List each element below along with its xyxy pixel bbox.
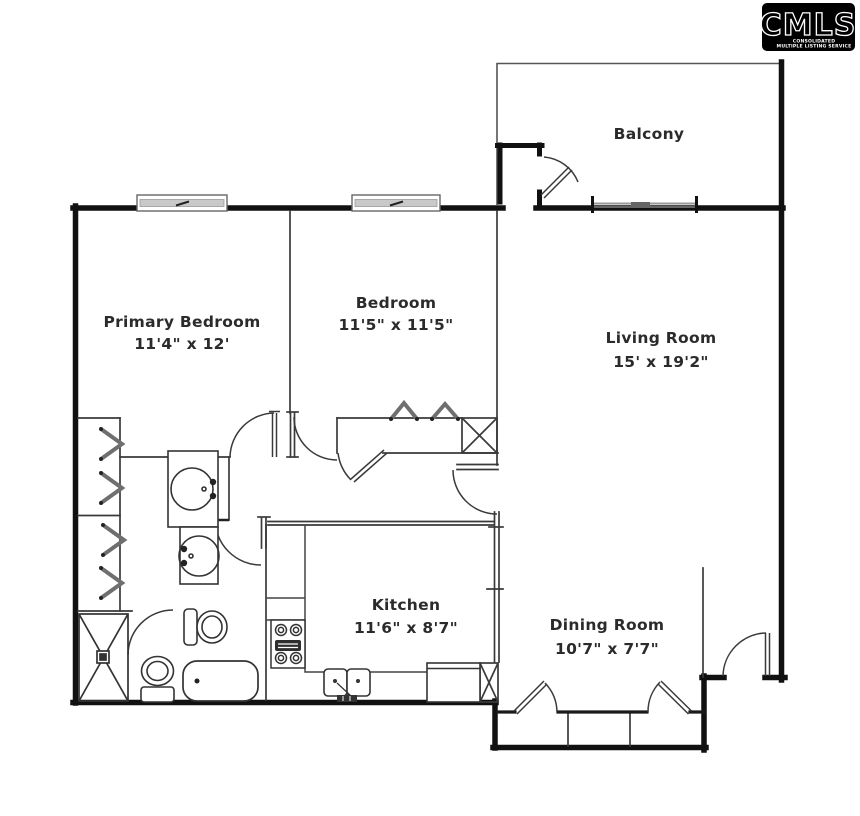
room-dims-bedroom: 11'5" x 11'5" bbox=[338, 316, 453, 334]
room-label-primary-bedroom: Primary Bedroom bbox=[103, 313, 260, 331]
pantry-cabinet bbox=[480, 663, 498, 702]
vanity-sink bbox=[168, 451, 218, 527]
window bbox=[137, 195, 227, 211]
floor-plan-page: Balcony Primary Bedroom 11'4" x 12' Bedr… bbox=[0, 0, 860, 816]
room-dims-dining-room: 10'7" x 7'7" bbox=[555, 640, 659, 658]
window bbox=[352, 195, 440, 211]
room-label-living-room: Living Room bbox=[606, 329, 717, 347]
window-sill-mark bbox=[631, 202, 650, 207]
closet-rod bbox=[101, 403, 458, 598]
refrigerator bbox=[427, 663, 480, 702]
kitchen-double-sink bbox=[324, 669, 370, 702]
closet-rod-end-caps bbox=[99, 417, 460, 600]
room-dims-kitchen: 11'6" x 8'7" bbox=[354, 619, 458, 637]
room-dims-primary-bedroom: 11'4" x 12' bbox=[134, 335, 230, 353]
cmls-logo-tagline-2: MULTIPLE LISTING SERVICE bbox=[777, 44, 852, 50]
cmls-logo: CMLS CONSOLIDATED MULTIPLE LISTING SERVI… bbox=[760, 3, 857, 51]
shower-stall bbox=[79, 614, 128, 701]
floor-plan-drawing: Balcony Primary Bedroom 11'4" x 12' Bedr… bbox=[0, 0, 860, 816]
cmls-logo-brand: CMLS bbox=[760, 8, 857, 43]
exterior-walls bbox=[73, 62, 785, 750]
room-dims-living-room: 15' x 19'2" bbox=[613, 353, 709, 371]
utility-closet bbox=[462, 418, 497, 453]
vanity-sink bbox=[179, 527, 219, 584]
toilet bbox=[141, 657, 174, 703]
room-label-balcony: Balcony bbox=[614, 125, 685, 143]
toilet bbox=[184, 609, 227, 645]
stove-cooktop bbox=[271, 620, 305, 668]
bathtub bbox=[183, 661, 258, 701]
room-label-dining-room: Dining Room bbox=[550, 616, 665, 634]
balcony-vestibule-walls bbox=[498, 145, 543, 203]
balcony-door-swing bbox=[541, 157, 578, 198]
room-label-kitchen: Kitchen bbox=[372, 596, 441, 614]
room-label-bedroom: Bedroom bbox=[356, 294, 437, 312]
